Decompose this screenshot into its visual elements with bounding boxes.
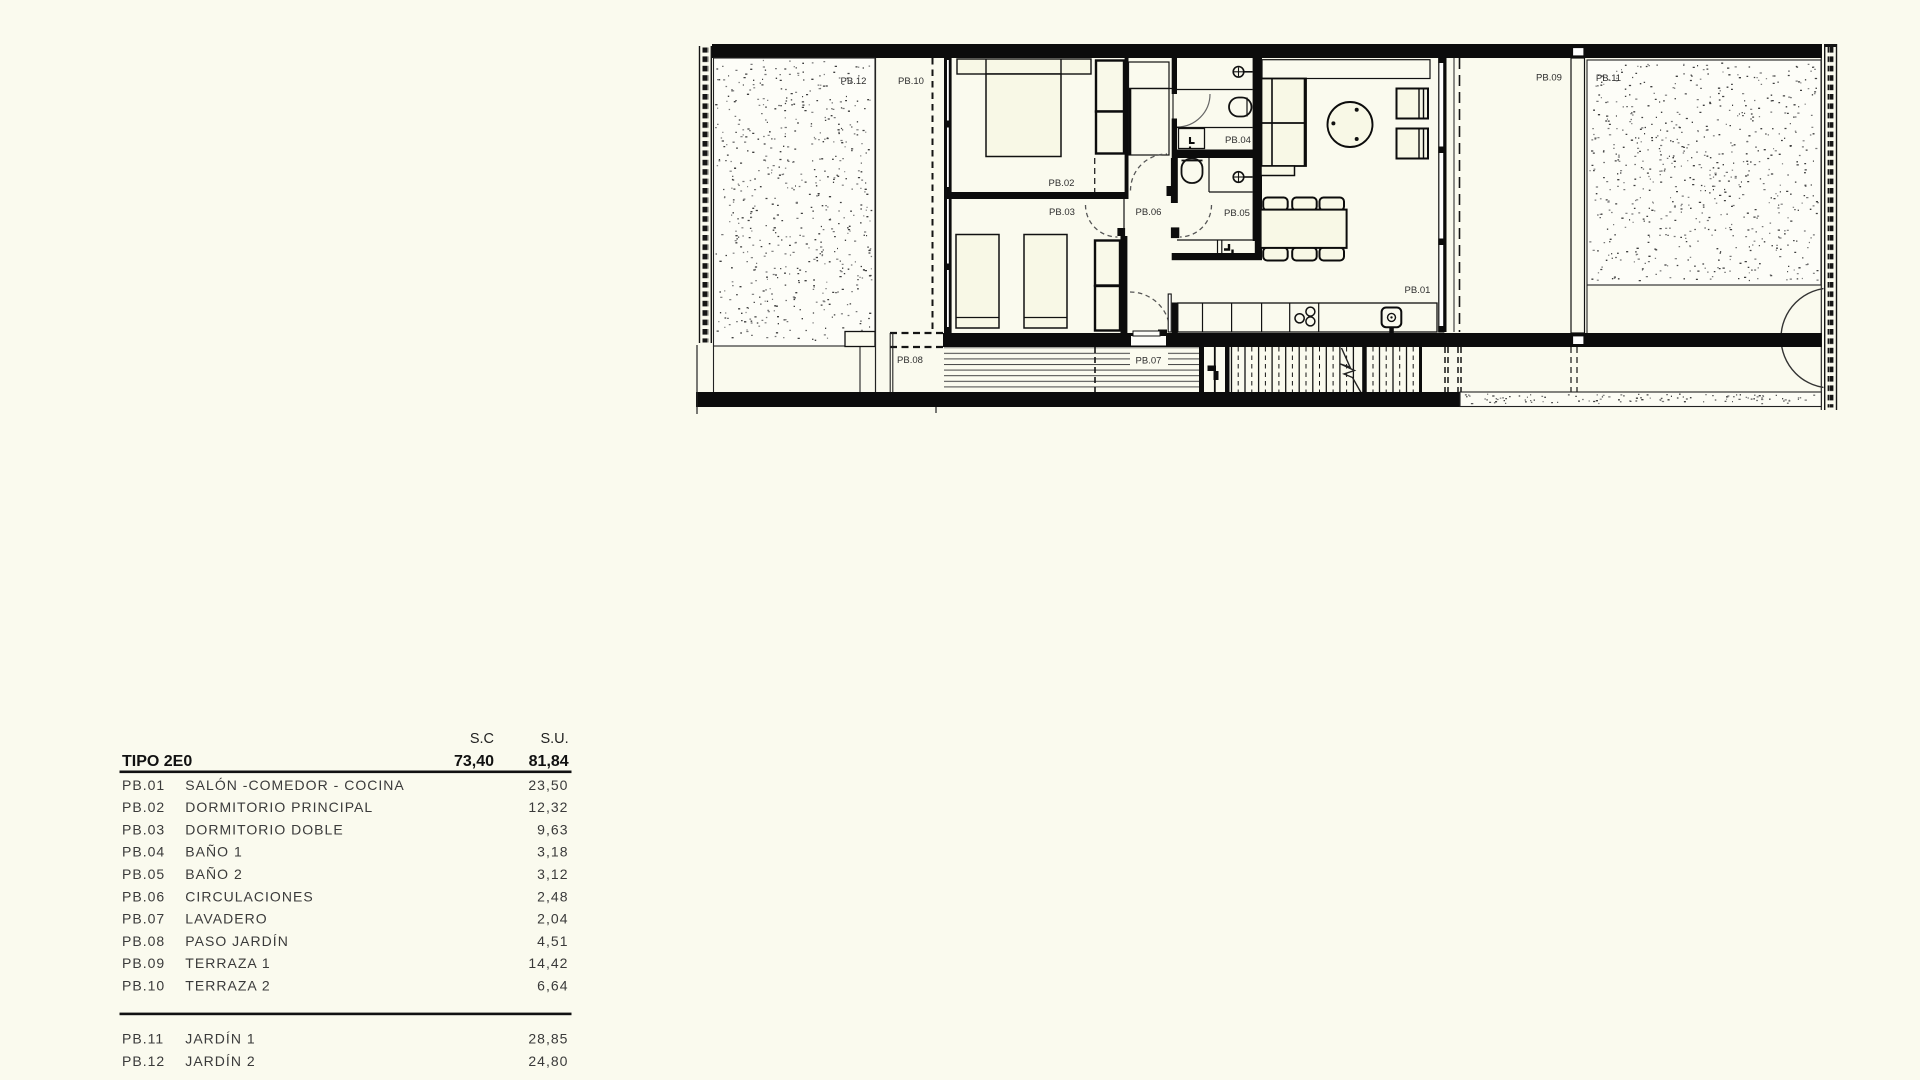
svg-text:PB.07: PB.07 bbox=[1136, 356, 1162, 367]
svg-text:6,64: 6,64 bbox=[537, 978, 568, 994]
svg-text:PB.04: PB.04 bbox=[1225, 135, 1251, 146]
svg-text:PB.09: PB.09 bbox=[1536, 73, 1562, 84]
svg-text:PB.06: PB.06 bbox=[122, 888, 165, 904]
svg-text:PB.08: PB.08 bbox=[897, 355, 923, 366]
svg-text:PB.07: PB.07 bbox=[122, 911, 165, 927]
svg-text:23,50: 23,50 bbox=[528, 777, 568, 793]
svg-text:3,18: 3,18 bbox=[537, 844, 568, 860]
svg-text:JARDÍN 2: JARDÍN 2 bbox=[185, 1053, 255, 1069]
svg-text:PB.04: PB.04 bbox=[122, 844, 165, 860]
svg-text:PASO JARDÍN: PASO JARDÍN bbox=[185, 933, 289, 949]
svg-text:4,51: 4,51 bbox=[537, 933, 568, 949]
svg-text:SALÓN -COMEDOR - COCINA: SALÓN -COMEDOR - COCINA bbox=[185, 777, 404, 793]
svg-text:PB.05: PB.05 bbox=[122, 866, 165, 882]
svg-text:9,63: 9,63 bbox=[537, 821, 568, 837]
svg-text:PB.11: PB.11 bbox=[122, 1031, 164, 1047]
svg-text:S.C: S.C bbox=[470, 731, 494, 747]
svg-text:PB.06: PB.06 bbox=[1136, 207, 1162, 218]
svg-text:CIRCULACIONES: CIRCULACIONES bbox=[185, 888, 313, 904]
svg-text:DORMITORIO PRINCIPAL: DORMITORIO PRINCIPAL bbox=[185, 799, 373, 815]
svg-text:PB.12: PB.12 bbox=[841, 76, 867, 87]
svg-text:PB.12: PB.12 bbox=[122, 1053, 165, 1069]
svg-text:2,48: 2,48 bbox=[537, 888, 568, 904]
svg-text:PB.02: PB.02 bbox=[1049, 178, 1075, 189]
svg-text:PB.03: PB.03 bbox=[1049, 207, 1075, 218]
svg-text:TIPO 2E0: TIPO 2E0 bbox=[122, 753, 192, 770]
svg-text:BAÑO 1: BAÑO 1 bbox=[185, 844, 242, 860]
svg-text:BAÑO 2: BAÑO 2 bbox=[185, 866, 242, 882]
svg-text:JARDÍN 1: JARDÍN 1 bbox=[185, 1031, 255, 1047]
svg-text:PB.01: PB.01 bbox=[122, 777, 165, 793]
svg-text:PB.10: PB.10 bbox=[898, 76, 924, 87]
svg-text:PB.08: PB.08 bbox=[122, 933, 165, 949]
svg-text:PB.01: PB.01 bbox=[1405, 285, 1431, 296]
svg-text:PB.09: PB.09 bbox=[122, 955, 165, 971]
svg-text:24,80: 24,80 bbox=[528, 1053, 568, 1069]
svg-text:PB.05: PB.05 bbox=[1224, 208, 1250, 219]
svg-text:81,84: 81,84 bbox=[529, 753, 569, 770]
svg-text:2,04: 2,04 bbox=[537, 911, 568, 927]
svg-text:PB.10: PB.10 bbox=[122, 978, 165, 994]
svg-text:73,40: 73,40 bbox=[454, 753, 494, 770]
svg-text:TERRAZA 1: TERRAZA 1 bbox=[185, 955, 270, 971]
svg-text:12,32: 12,32 bbox=[528, 799, 568, 815]
svg-text:PB.02: PB.02 bbox=[122, 799, 165, 815]
svg-text:PB.11: PB.11 bbox=[1596, 73, 1621, 84]
svg-text:S.U.: S.U. bbox=[540, 731, 568, 747]
svg-text:14,42: 14,42 bbox=[528, 955, 568, 971]
svg-text:28,85: 28,85 bbox=[528, 1031, 568, 1047]
svg-text:DORMITORIO DOBLE: DORMITORIO DOBLE bbox=[185, 821, 343, 837]
svg-text:TERRAZA 2: TERRAZA 2 bbox=[185, 978, 270, 994]
svg-text:LAVADERO: LAVADERO bbox=[185, 911, 267, 927]
svg-text:PB.03: PB.03 bbox=[122, 821, 165, 837]
svg-text:3,12: 3,12 bbox=[537, 866, 568, 882]
